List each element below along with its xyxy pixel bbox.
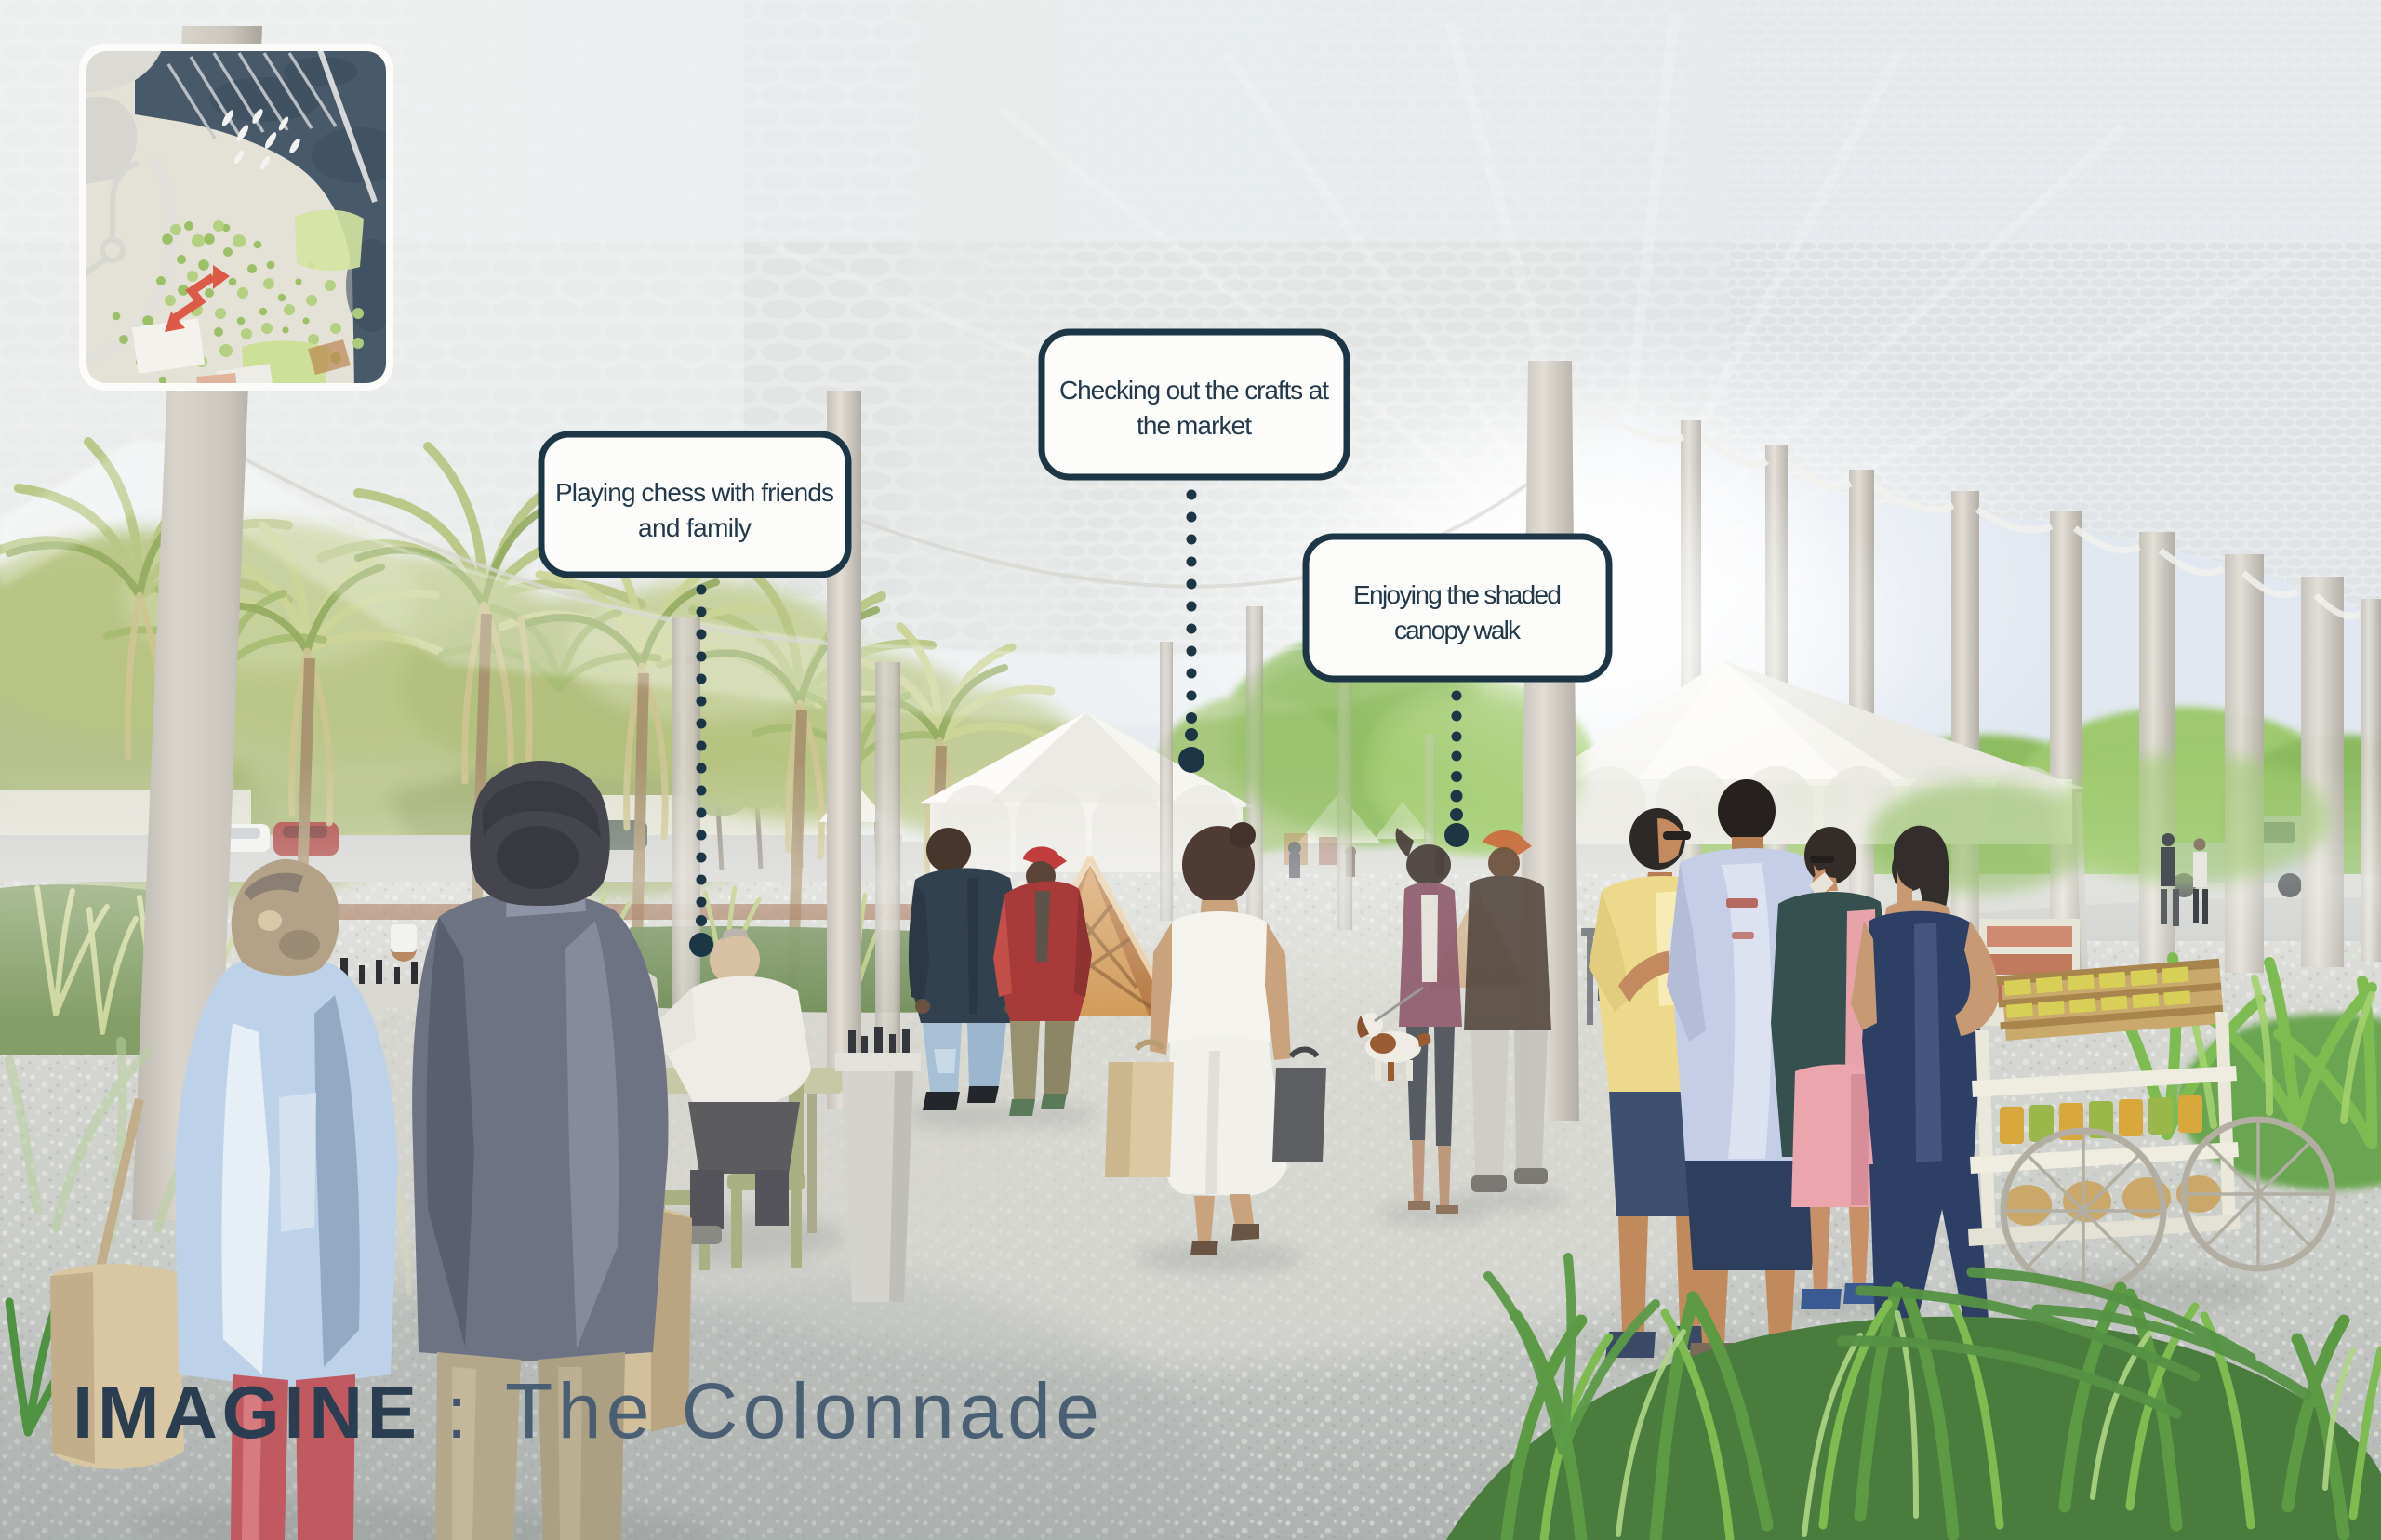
svg-text:IMAGINE: IMAGINE (73, 1371, 423, 1454)
svg-text:Enjoying the shaded: Enjoying the shaded (1353, 580, 1562, 609)
svg-text:and family: and family (638, 513, 752, 542)
svg-text:canopy walk: canopy walk (1394, 616, 1522, 644)
svg-text:Playing chess with friends: Playing chess with friends (555, 478, 834, 507)
svg-text::: : (446, 1371, 467, 1454)
svg-text:The Colonnade: The Colonnade (505, 1367, 1103, 1454)
svg-text:Checking out the crafts at: Checking out the crafts at (1059, 376, 1329, 405)
svg-text:the market: the market (1137, 411, 1252, 440)
